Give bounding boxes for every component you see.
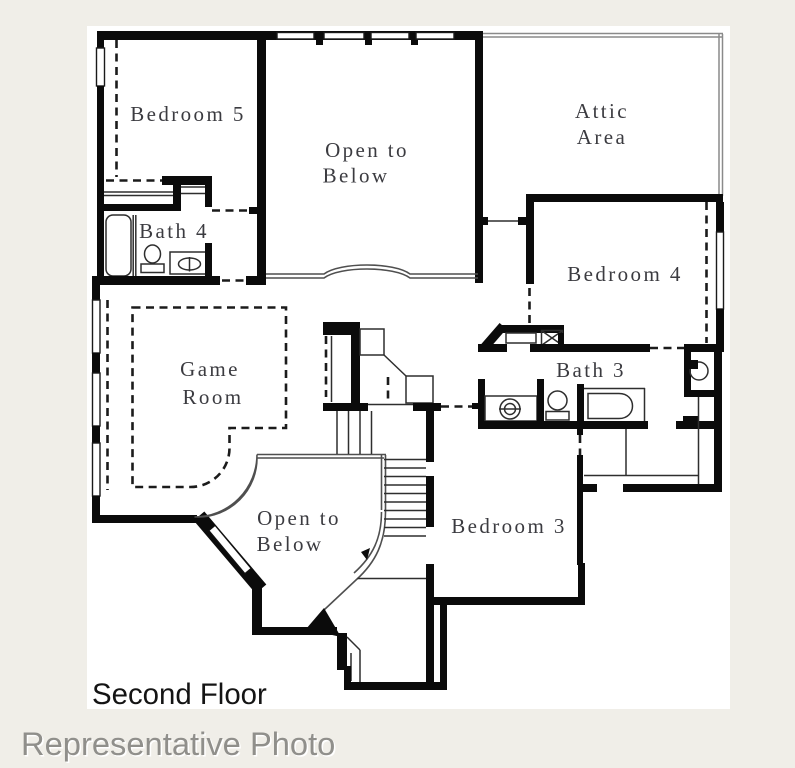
svg-text:Bath 3: Bath 3 <box>556 358 626 382</box>
svg-text:Area: Area <box>577 125 627 149</box>
svg-text:Below: Below <box>257 532 324 556</box>
svg-text:Open to: Open to <box>325 138 409 162</box>
svg-text:Open to: Open to <box>257 506 341 530</box>
svg-text:Attic: Attic <box>575 99 629 123</box>
svg-text:Bedroom 5: Bedroom 5 <box>130 102 246 126</box>
svg-text:Room: Room <box>183 385 244 409</box>
svg-text:Game: Game <box>180 357 240 381</box>
svg-text:Bath 4: Bath 4 <box>139 219 209 243</box>
svg-text:Bedroom 3: Bedroom 3 <box>451 514 567 538</box>
svg-text:Representative Photo: Representative Photo <box>21 725 335 762</box>
svg-text:Below: Below <box>323 164 390 188</box>
svg-text:Second Floor: Second Floor <box>92 678 267 711</box>
svg-text:Bedroom 4: Bedroom 4 <box>567 262 683 286</box>
